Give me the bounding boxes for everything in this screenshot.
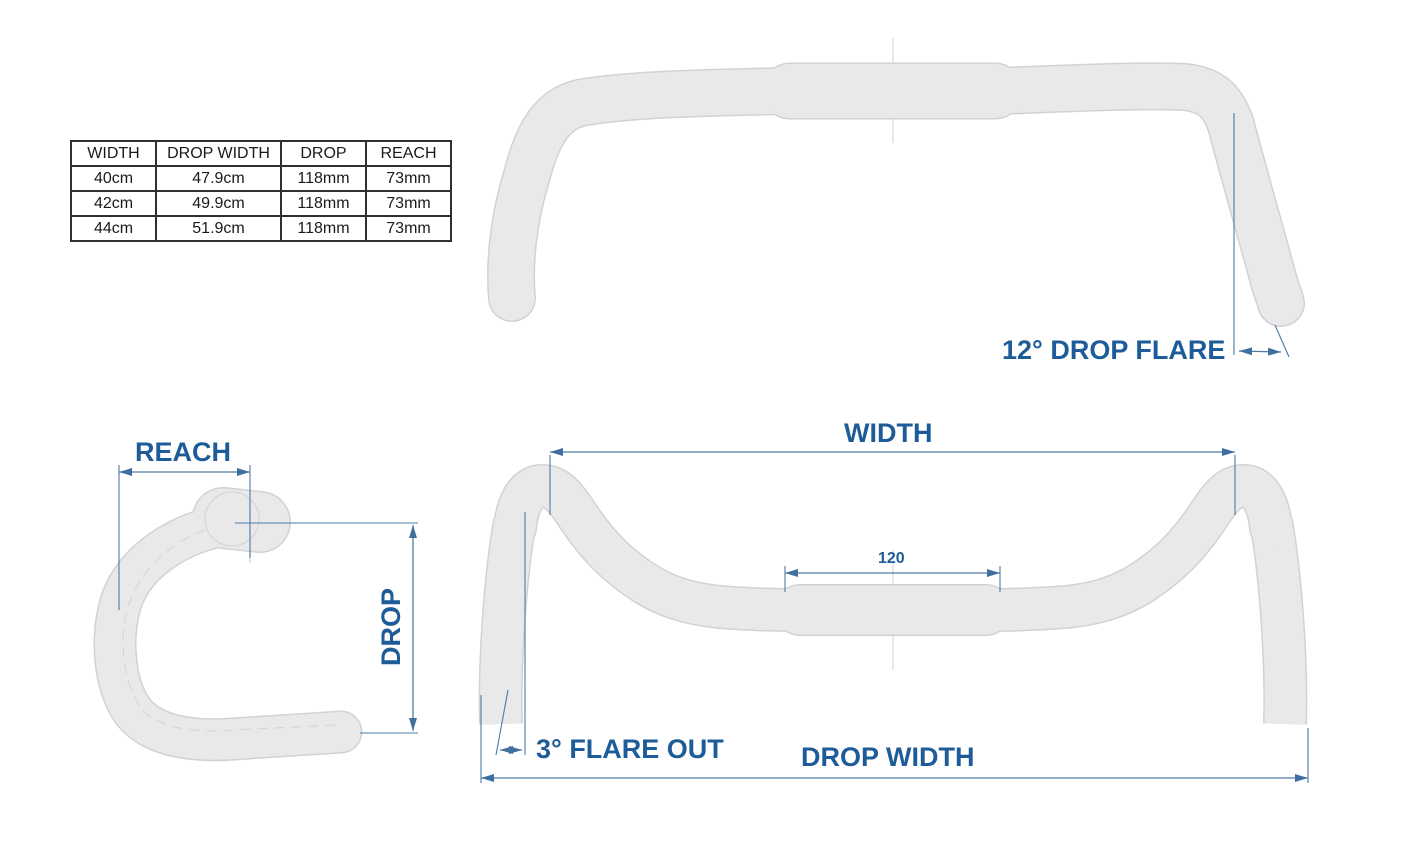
cell: 44cm	[71, 216, 156, 241]
flare-out-label: 3° FLARE OUT	[536, 736, 724, 763]
table-row: 44cm 51.9cm 118mm 73mm	[71, 216, 451, 241]
drop-label: DROP	[378, 557, 408, 697]
cell: 40cm	[71, 166, 156, 191]
cell: 73mm	[366, 166, 451, 191]
cell: 118mm	[281, 191, 366, 216]
width-dimension	[550, 452, 1235, 515]
table-row: 40cm 47.9cm 118mm 73mm	[71, 166, 451, 191]
cell: 51.9cm	[156, 216, 281, 241]
drop-flare-label: 12° DROP FLARE	[1002, 337, 1225, 364]
cell: 49.9cm	[156, 191, 281, 216]
table-row: 42cm 49.9cm 118mm 73mm	[71, 191, 451, 216]
cell: 73mm	[366, 216, 451, 241]
handlebar-geometry-diagram: WIDTH DROP WIDTH DROP REACH 40cm 47.9cm …	[0, 0, 1402, 842]
cell: 47.9cm	[156, 166, 281, 191]
reach-label: REACH	[135, 439, 231, 466]
clamp-length-label: 120	[878, 551, 905, 567]
cell: 118mm	[281, 166, 366, 191]
top-view-drawing	[455, 30, 1335, 380]
spec-table-header-row: WIDTH DROP WIDTH DROP REACH	[71, 141, 451, 166]
header-drop: DROP	[281, 141, 366, 166]
width-label: WIDTH	[844, 420, 932, 447]
cell: 73mm	[366, 191, 451, 216]
handlebar-top-view-tube	[511, 86, 1281, 303]
handlebar-front-view-tube	[501, 486, 1286, 724]
cell: 42cm	[71, 191, 156, 216]
header-reach: REACH	[366, 141, 451, 166]
header-drop-width: DROP WIDTH	[156, 141, 281, 166]
drop-width-label: DROP WIDTH	[801, 744, 975, 771]
handlebar-side-view-tube	[115, 492, 341, 740]
header-width: WIDTH	[71, 141, 156, 166]
spec-table: WIDTH DROP WIDTH DROP REACH 40cm 47.9cm …	[70, 140, 452, 242]
cell: 118mm	[281, 216, 366, 241]
